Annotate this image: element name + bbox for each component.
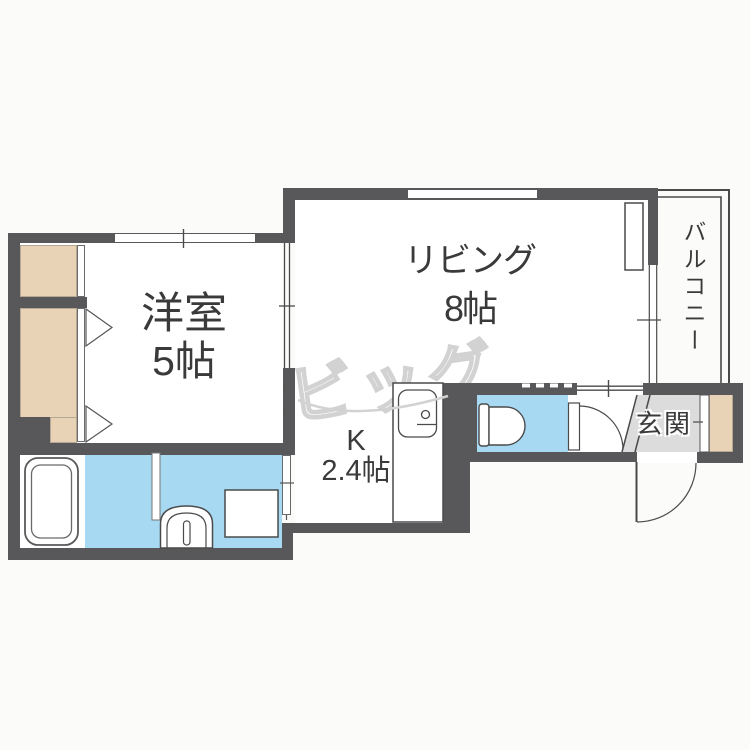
- toilet-door-leaf: [569, 403, 580, 450]
- entrance-side-panel: [700, 395, 709, 452]
- western-room-label: 洋室 5帖: [94, 292, 274, 383]
- living-room-size: 8帖: [385, 290, 555, 328]
- balcony-door-panel: [625, 203, 643, 270]
- bath-washroom-divider: [152, 453, 160, 520]
- balcony-label: バルコニー: [676, 220, 710, 390]
- kitchen-name: K: [301, 426, 411, 456]
- western-room-name: 洋室: [94, 292, 274, 337]
- closet-door-triangle-2: [86, 406, 112, 442]
- kitchen-size: 2.4帖: [301, 456, 411, 486]
- washbasin-faucet: [184, 521, 191, 545]
- front-door-arc: [637, 463, 696, 522]
- western-room-size: 5帖: [94, 340, 274, 383]
- toilet-door-arc: [580, 406, 623, 449]
- toilet-tank: [479, 404, 489, 446]
- kitchen-label: K 2.4帖: [301, 426, 411, 487]
- floorplan-page: { "rooms": { "western": { "name": "洋室", …: [0, 0, 750, 750]
- bathtub-outer: [25, 458, 78, 545]
- living-room-label: リビング 8帖: [385, 244, 555, 327]
- washing-machine-pan: [225, 490, 278, 537]
- entrance-label: 玄関: [636, 404, 692, 441]
- toilet-bowl: [489, 407, 525, 445]
- kitchen-faucet: [422, 411, 430, 419]
- living-room-name: リビング: [385, 244, 555, 280]
